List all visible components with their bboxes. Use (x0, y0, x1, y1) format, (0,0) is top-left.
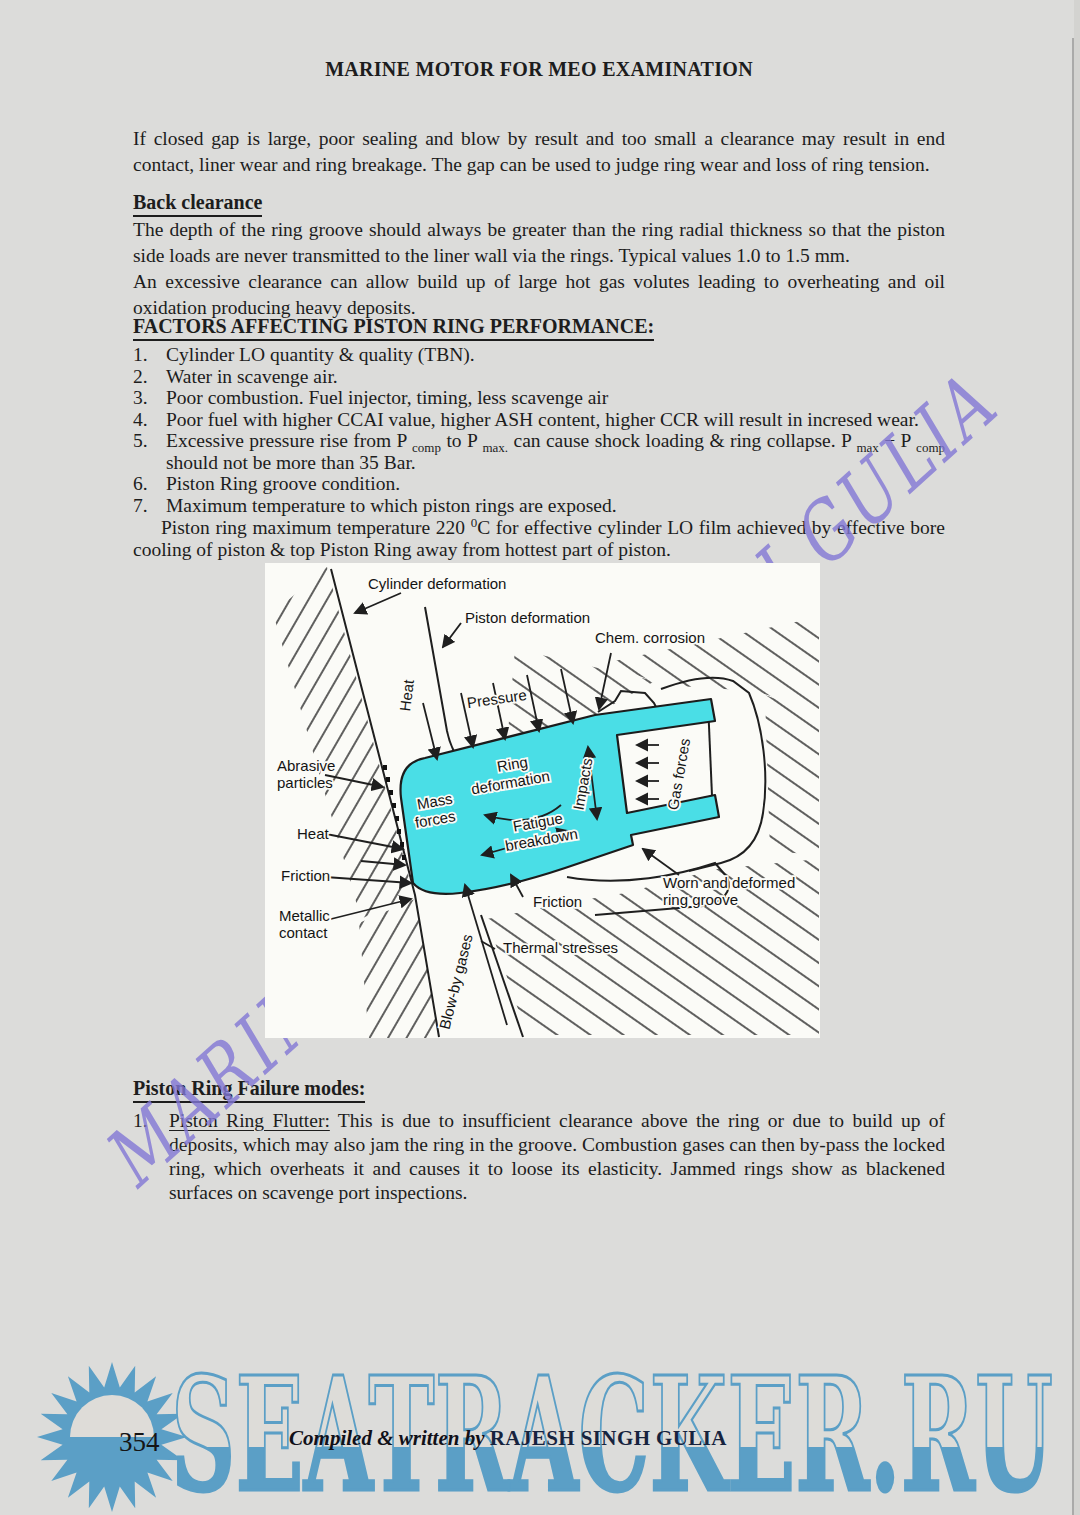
list-item: 6. Piston Ring groove condition. (133, 473, 945, 495)
label-chem-corrosion: Chem. corrosion (595, 629, 705, 646)
text-segment: should not be more than 35 Bar. (166, 452, 416, 473)
piston-ring-diagram-svg: Cylinder deformation Piston deformation … (265, 563, 820, 1038)
list-item: 3. Poor combustion. Fuel injector, timin… (133, 387, 945, 409)
back-clearance-heading: Back clearance (133, 190, 262, 217)
item-text: Cylinder LO quantity & quality (TBN). (166, 344, 945, 366)
list-item: 1. Cylinder LO quantity & quality (TBN). (133, 344, 945, 366)
label-worn-groove-line2: ring groove (663, 891, 738, 908)
item-text: Poor fuel with higher CCAI value, higher… (166, 409, 945, 431)
text-segment: − P (879, 430, 916, 451)
scan-edge-strip (1074, 0, 1080, 1515)
scan-edge-line (1072, 38, 1074, 1515)
item-number: 1. (133, 1109, 169, 1205)
label-thermal-stresses: Thermal stresses (503, 939, 618, 956)
item-text: Piston Ring groove condition. (166, 473, 945, 495)
text-segment: Excessive pressure rise from P (166, 430, 412, 451)
scanned-document-page: { "page": { "title": "MARINE MOTOR FOR M… (0, 0, 1080, 1515)
label-heat-top: Heat (396, 678, 417, 712)
list-item: 1. Piston Ring Flutter: This is due to i… (133, 1109, 945, 1205)
item-number: 4. (133, 409, 166, 431)
label-abrasive-line2: particles (277, 774, 333, 791)
label-blow-by-gases: Blow-by gases (436, 932, 476, 1031)
item-text: Water in scavenge air. (166, 366, 945, 388)
back-clearance-para-1: The depth of the ring groove should alwa… (133, 217, 945, 269)
factors-list: 1. Cylinder LO quantity & quality (TBN).… (133, 344, 945, 516)
item-number: 7. (133, 495, 166, 517)
pressure-arrow (423, 703, 437, 759)
item-number: 1. (133, 344, 166, 366)
list-item: 5. Excessive pressure rise from P comp t… (133, 430, 945, 473)
subscript: max (856, 440, 878, 455)
list-item: 2. Water in scavenge air. (133, 366, 945, 388)
piston-deformation-arrow (443, 623, 461, 647)
footer-credit: Compiled & written by RAJESH SINGH GULIA (0, 1426, 1048, 1451)
text-segment: Piston ring maximum temperature 220 (161, 517, 471, 538)
subscript: comp (412, 440, 441, 455)
list-item: 7. Maximum temperature to which piston r… (133, 495, 945, 517)
text-segment: can cause shock loading & ring collapse.… (508, 430, 856, 451)
item-text: Poor combustion. Fuel injector, timing, … (166, 387, 945, 409)
factors-note: Piston ring maximum temperature 220 0C f… (133, 517, 945, 560)
worn-groove-arrow (643, 849, 679, 875)
label-cylinder-deformation: Cylinder deformation (368, 575, 506, 592)
factors-heading: FACTORS AFFECTING PISTON RING PERFORMANC… (133, 314, 654, 341)
credit-prefix: Compiled & written by (289, 1426, 490, 1450)
item-text: Piston Ring Flutter: This is due to insu… (169, 1109, 945, 1205)
label-friction-bottom: Friction (533, 893, 582, 910)
item-number: 6. (133, 473, 166, 495)
item-text: Excessive pressure rise from P comp to P… (166, 430, 945, 473)
label-metallic-line1: Metallic (279, 907, 330, 924)
item-number: 2. (133, 366, 166, 388)
failure-modes-heading: Piston Ring Failure modes: (133, 1076, 365, 1103)
item-title-underlined: Piston Ring Flutter: (169, 1110, 330, 1131)
subscript: max. (482, 440, 508, 455)
item-number: 3. (133, 387, 166, 409)
section-back-clearance: Back clearance The depth of the ring gro… (133, 190, 945, 321)
section-failure-modes: Piston Ring Failure modes: 1. Piston Rin… (133, 1076, 945, 1205)
item-text: Maximum temperature to which piston ring… (166, 495, 945, 517)
subscript: comp (916, 440, 945, 455)
piston-ring-diagram: Cylinder deformation Piston deformation … (265, 563, 820, 1038)
page-title: MARINE MOTOR FOR MEO EXAMINATION (133, 58, 945, 81)
text-segment: to P (441, 430, 482, 451)
section-factors: FACTORS AFFECTING PISTON RING PERFORMANC… (133, 314, 945, 560)
list-item: 4. Poor fuel with higher CCAI value, hig… (133, 409, 945, 431)
cylinder-deformation-arrow (355, 593, 401, 613)
label-heat-left: Heat (297, 825, 330, 842)
credit-author-name: RAJESH SINGH GULIA (490, 1426, 727, 1450)
label-piston-deformation: Piston deformation (465, 609, 590, 626)
hatch-right-land (765, 695, 819, 855)
intro-paragraph: If closed gap is large, poor sealing and… (133, 126, 945, 178)
label-worn-groove-line1: Worn and deformed (663, 874, 795, 891)
label-metallic-line2: contact (279, 924, 328, 941)
label-friction-left: Friction (281, 867, 330, 884)
label-abrasive-line1: Abrasive (277, 757, 335, 774)
item-number: 5. (133, 430, 166, 473)
